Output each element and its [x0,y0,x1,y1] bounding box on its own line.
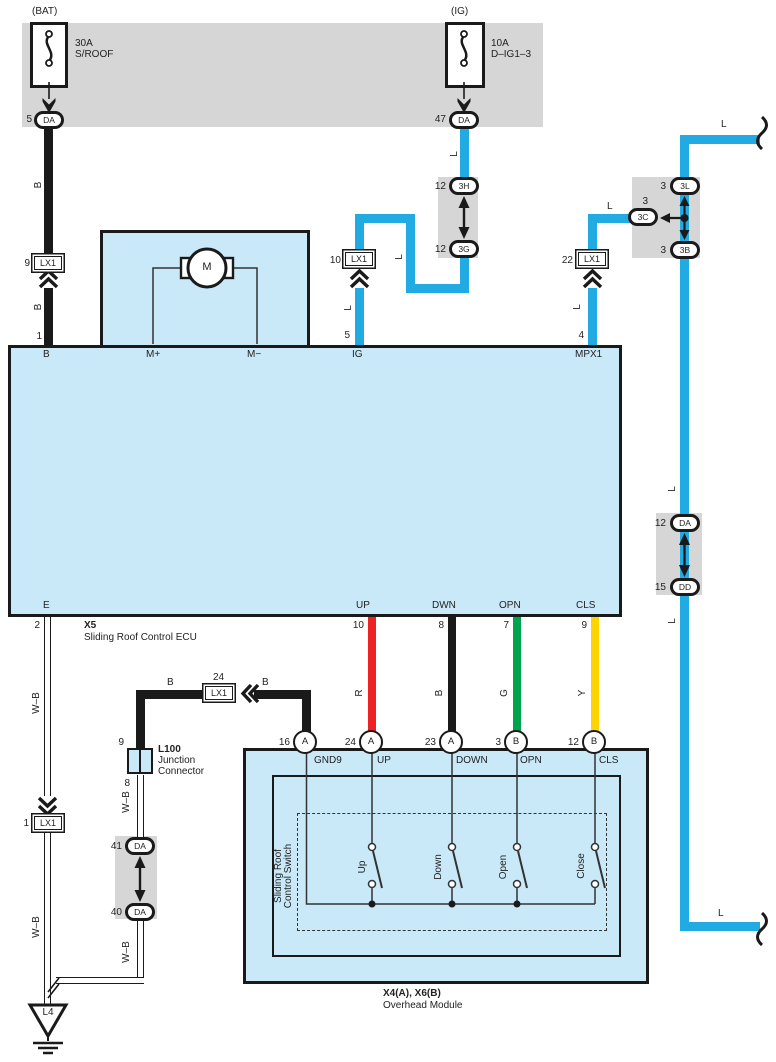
switch-assembly-label-line2: Control Switch [283,844,294,908]
module-pin-circle-cls: B [582,730,606,754]
module-pin-num-up: 24 [340,737,356,748]
wire-label-g: G [500,689,510,697]
pin-num-lx9: 9 [12,258,30,269]
ig-fuse-amp: 10A [491,38,509,49]
module-pin-circle-opn: B [504,730,528,754]
module-name: Overhead Module [383,1000,463,1011]
module-pin-circle-gnd9: A [293,730,317,754]
wire-label-l-9: L [718,908,724,919]
arrow-da41-da40 [135,856,146,902]
connector-3h-code: 3H [459,181,470,191]
pin-num-3b: 3 [654,245,666,256]
wire-label-b-gnd9-right: B [262,677,269,688]
wire-label-l-5: L [573,304,583,310]
ecu-pin-ig: IG [352,349,363,360]
connector-lx1-24: LX1 [205,686,233,700]
module-pin-cls-conn: B [591,736,597,747]
connector-dd15-code: DD [679,582,691,592]
module-pin-label-opn: OPN [520,755,542,766]
pin-num-3g: 12 [428,244,446,255]
l100-code: L100 [158,744,181,755]
module-pin-label-down: DOWN [456,755,488,766]
module-pin-down-conn: A [448,736,454,747]
switch-assembly-label: Sliding Roof Control Switch [274,844,294,908]
ecu-pin-dwn: DWN [432,600,456,611]
wire-label-y: Y [578,690,588,697]
module-pin-num-gnd9: 16 [274,737,290,748]
bat-header: (BAT) [32,6,57,17]
arrow-3h-3g [459,196,470,239]
l100-pin-top: 9 [110,737,124,748]
connector-3c-code: 3C [638,212,649,222]
break-squiggle-top [758,117,767,149]
ecu-pin-mminus: M− [247,349,261,360]
chevron-down-1lx1 [38,796,57,815]
ecu-pin-num-b: 1 [26,331,42,342]
connector-3c: 3C [628,208,658,226]
fuse-glyph-bat [43,31,56,113]
switch-label-open: Open [499,855,509,879]
connector-3b-code: 3B [680,245,690,255]
module-pin-num-opn: 3 [487,737,501,748]
break-squiggle-bottom [758,913,767,945]
connector-dd15: DD [670,578,700,596]
l100-pin-bottom: 8 [116,778,130,789]
wire-label-b-1: B [34,182,44,189]
l100-name-line1: Junction [158,755,195,766]
module-pin-label-gnd9: GND9 [314,755,342,766]
ecu-pin-mpx1: MPX1 [575,349,602,360]
junction-3l-3c-3b [660,196,690,240]
connector-lx1-10: LX1 [345,252,373,266]
ecu-pin-b: B [43,349,50,360]
module-pin-label-cls: CLS [599,755,618,766]
bat-fuse-name: S/ROOF [75,49,113,60]
connector-da12: DA [670,514,700,532]
motor-label: M [199,262,215,273]
module-pin-gnd9-conn: A [302,736,308,747]
ecu-pin-num-up: 10 [342,620,364,631]
wire-label-wb-4: W–B [122,941,132,963]
module-pin-opn-conn: B [513,736,519,747]
ecu-pin-num-mpx1: 4 [568,330,584,341]
wire-label-wb-2: W–B [32,916,42,938]
connector-da41: DA [125,837,155,855]
ecu-pin-opn: OPN [499,600,521,611]
wire-label-l-1: L [450,151,460,157]
pin-num-da40: 40 [100,907,122,918]
pin-num-3c: 3 [636,196,648,207]
connector-da47: DA [449,111,479,129]
wire-label-b-dwn: B [435,690,445,697]
wire-label-b-gnd9-left: B [167,677,174,688]
pin-num-da12: 12 [644,518,666,529]
connector-da40-code: DA [134,907,146,917]
ecu-pin-num-opn: 7 [491,620,509,631]
switch-label-close: Close [577,853,587,879]
ecu-pin-mplus: M+ [146,349,160,360]
wire-label-b-2: B [34,304,44,311]
chevron-up-22lx1 [583,269,602,288]
module-pin-num-down: 23 [420,737,436,748]
wb-merge-diagonal [48,978,59,998]
wire-label-wb-3: W–B [122,791,132,813]
connector-lx1-22: LX1 [578,252,606,266]
connector-da5-code: DA [43,115,55,125]
ig-header: (IG) [451,6,468,17]
chevron-up-10lx1 [350,269,369,288]
connector-lx1-1-code: LX1 [40,818,56,828]
module-pin-circle-down: A [439,730,463,754]
wire-label-l-6: L [721,119,727,130]
connector-3b: 3B [670,241,700,259]
switch-label-down: Down [434,854,444,880]
connector-lx1-22-code: LX1 [584,254,600,264]
pin-num-lx24: 24 [204,672,233,683]
module-pin-label-up: UP [377,755,391,766]
ecu-pin-num-dwn: 8 [426,620,444,631]
module-pin-circle-up: A [359,730,383,754]
connector-da40: DA [125,903,155,921]
pin-num-da5: 5 [14,114,32,125]
wire-label-l-3: L [344,305,354,311]
ecu-pin-e: E [43,600,50,611]
l100-name-line2: Connector [158,766,204,777]
wire-label-r: R [355,689,365,696]
connector-lx1-1: LX1 [34,816,62,830]
arrow-da12-dd15 [679,533,690,577]
connector-3h: 3H [449,177,479,195]
connector-lx1-24-code: LX1 [211,688,227,698]
connector-3g: 3G [449,240,479,258]
pin-num-3h: 12 [428,181,446,192]
connector-da5: DA [34,111,64,129]
wire-label-l-2: L [395,254,405,260]
ig-fuse-name: D–IG1–3 [491,49,531,60]
wire-label-l-4: L [607,201,613,212]
connector-3g-code: 3G [458,244,469,254]
connector-3l-code: 3L [680,181,689,191]
pin-num-lx1: 1 [14,818,29,829]
module-pin-up-conn: A [368,736,374,747]
pin-num-lx10: 10 [322,255,341,266]
ecu-pin-up: UP [356,600,370,611]
bat-fuse-amp: 30A [75,38,93,49]
connector-lx1-10-code: LX1 [351,254,367,264]
pin-num-dd15: 15 [644,582,666,593]
chevron-up-9lx1 [39,269,58,288]
wire-label-wb-1: W–B [32,692,42,714]
ecu-pin-num-e: 2 [22,620,40,631]
connector-da47-code: DA [458,115,470,125]
pin-num-3l: 3 [654,181,666,192]
ecu-code: X5 [84,620,96,631]
module-pin-num-cls: 12 [561,737,579,748]
pin-num-da47: 47 [424,114,446,125]
wire-label-l-7: L [668,486,678,492]
switch-label-up: Up [358,861,368,874]
ecu-pin-cls: CLS [576,600,595,611]
connector-3l: 3L [670,177,700,195]
ecu-name: Sliding Roof Control ECU [84,632,197,643]
diagram-lineart [0,0,776,1062]
switch-assembly [307,748,606,908]
ground-label: L4 [36,1007,60,1018]
pin-num-da41: 41 [100,841,122,852]
connector-da41-code: DA [134,841,146,851]
ecu-pin-num-cls: 9 [569,620,587,631]
module-code: X4(A), X6(B) [383,988,441,999]
connector-lx1-9-code: LX1 [40,258,56,268]
fuse-glyph-ig [458,31,471,113]
wiring-diagram: DA DA 3H 3G 3L 3C 3B DA DD DA DA LX1 LX1… [0,0,776,1062]
pin-num-lx22: 22 [553,255,573,266]
chevron-left-24lx1 [234,684,258,703]
connector-da12-code: DA [679,518,691,528]
connector-lx1-9: LX1 [34,256,62,270]
wire-label-l-8: L [668,618,678,624]
ecu-pin-num-ig: 5 [332,330,350,341]
